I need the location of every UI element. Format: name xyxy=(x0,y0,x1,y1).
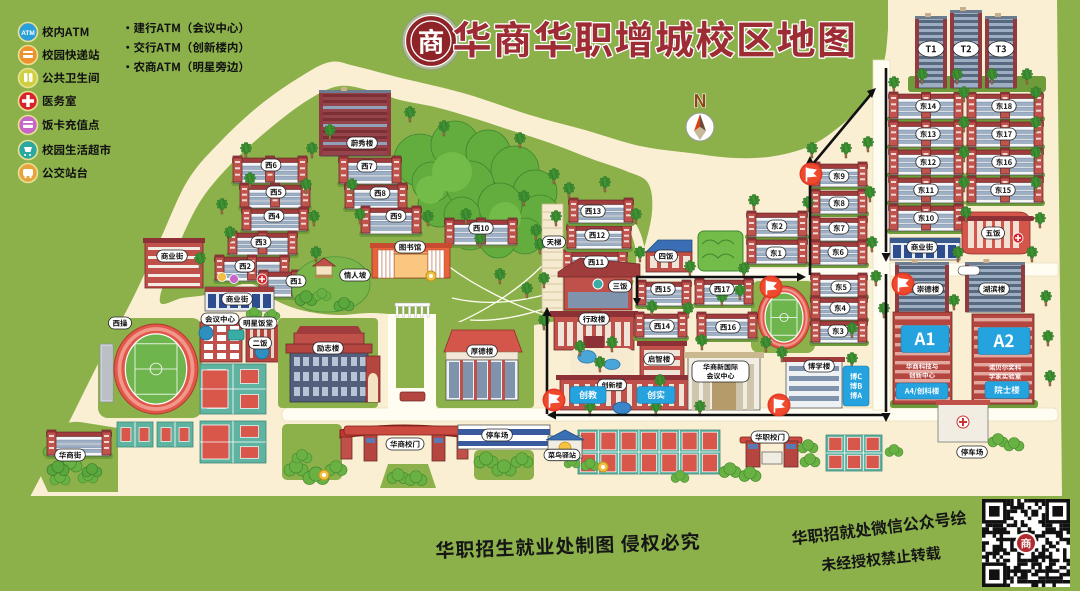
svg-text:ATM: ATM xyxy=(21,30,35,37)
